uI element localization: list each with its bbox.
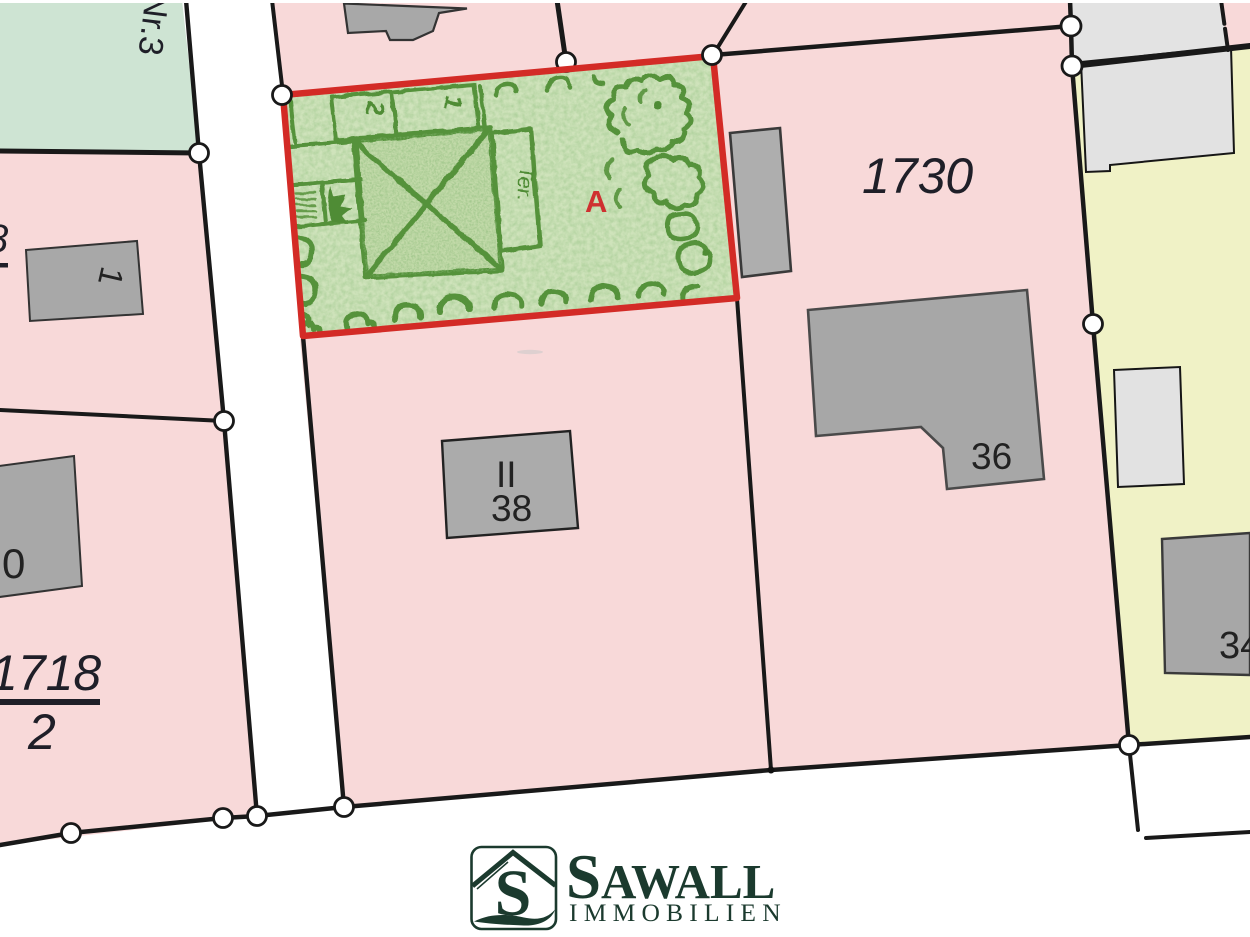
svg-text:0: 0 bbox=[2, 540, 25, 587]
svg-text:A: A bbox=[585, 184, 607, 219]
svg-text:36: 36 bbox=[971, 436, 1012, 477]
svg-text:IMMOBILIEN: IMMOBILIEN bbox=[569, 898, 787, 927]
svg-text:Nr.3: Nr.3 bbox=[130, 0, 175, 58]
svg-text:2: 2 bbox=[27, 704, 56, 760]
svg-text:38: 38 bbox=[491, 488, 532, 529]
svg-text:Ter.: Ter. bbox=[512, 165, 540, 203]
svg-text:8: 8 bbox=[0, 217, 9, 261]
svg-text:34: 34 bbox=[1219, 625, 1250, 667]
svg-text:1718: 1718 bbox=[0, 645, 101, 701]
svg-text:1730: 1730 bbox=[862, 148, 973, 204]
